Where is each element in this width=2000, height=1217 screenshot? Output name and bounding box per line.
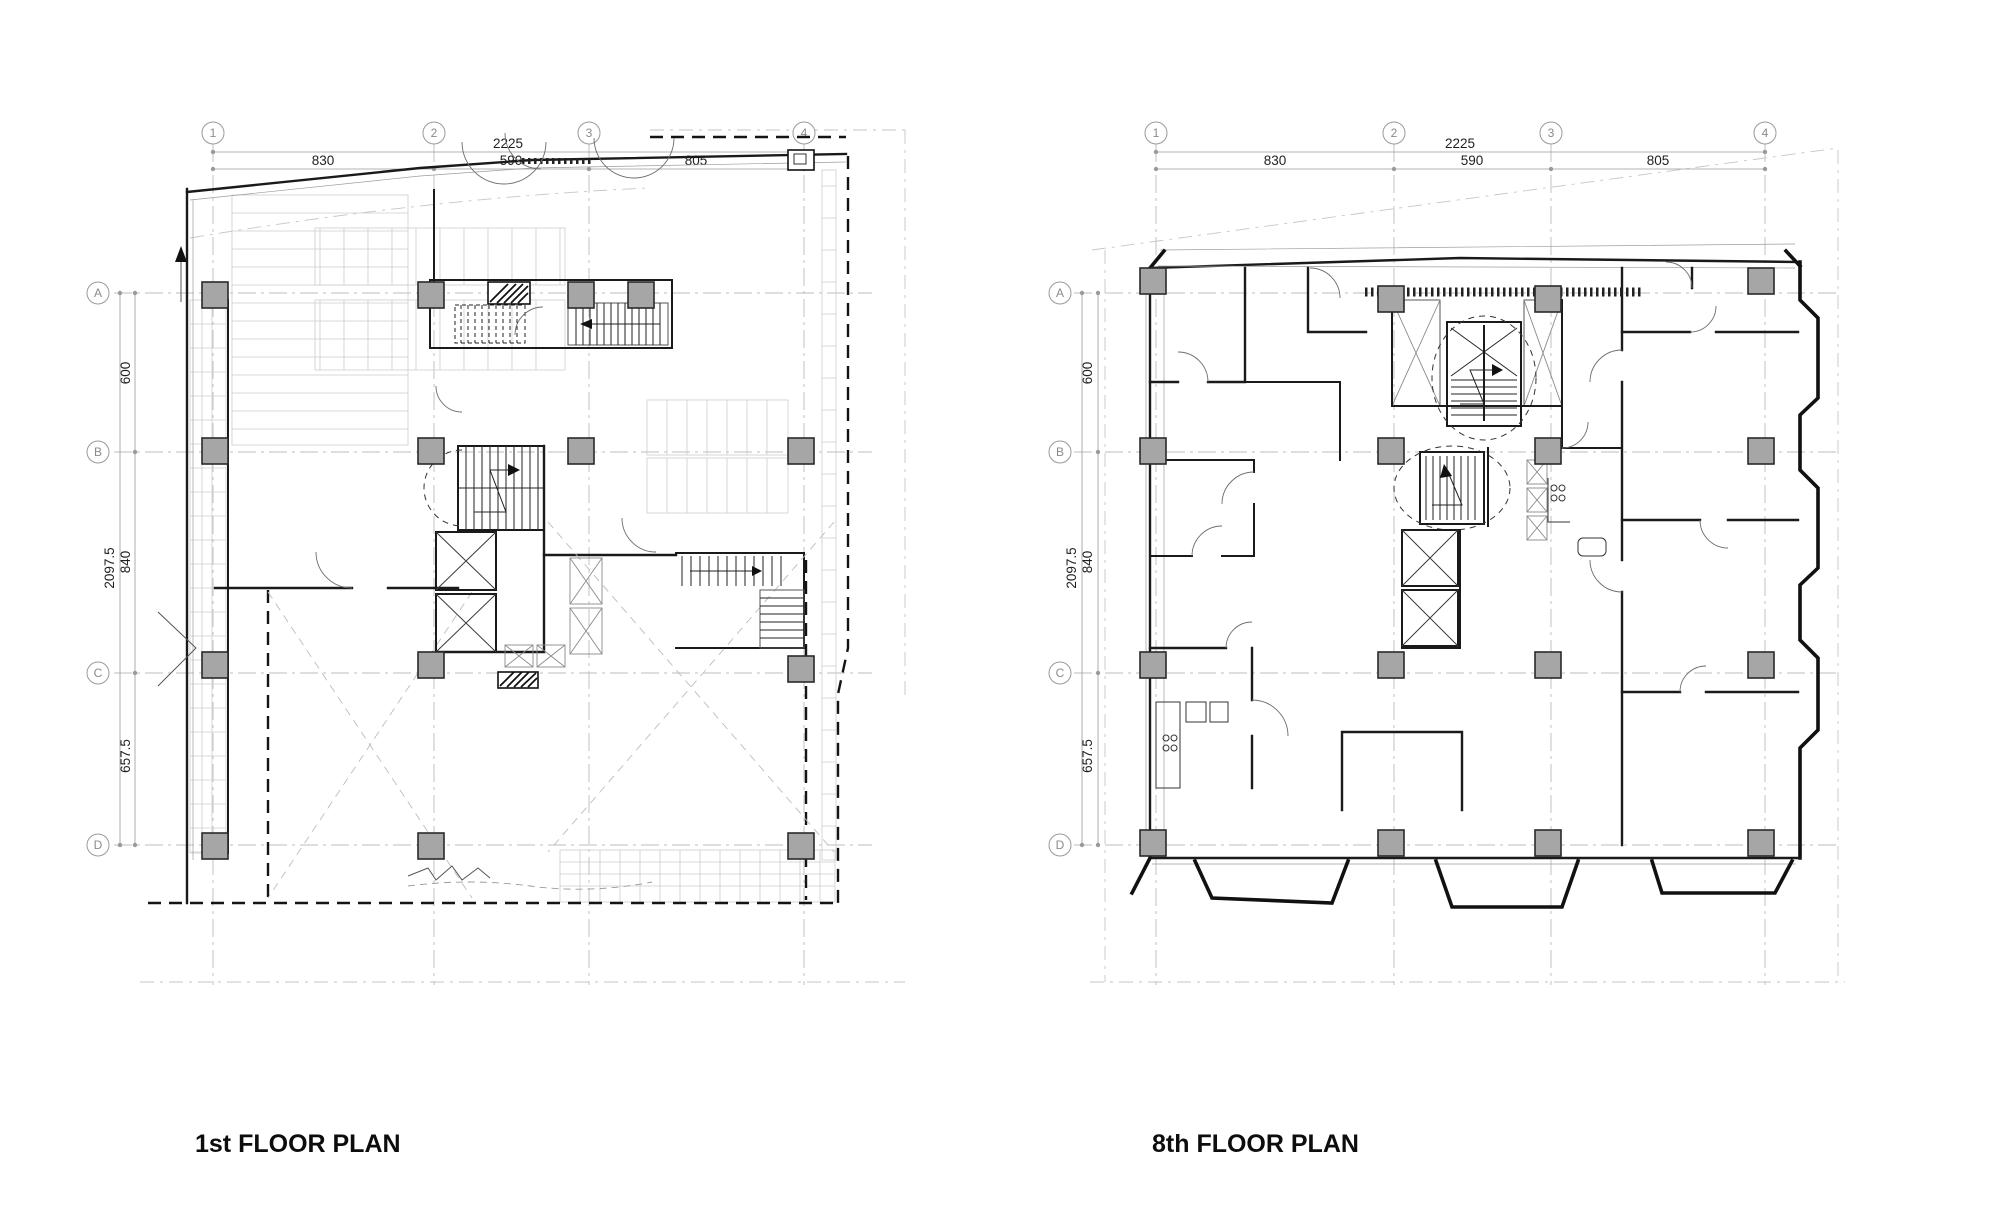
first-floor-title: 1st FLOOR PLAN	[195, 1130, 401, 1158]
building-walls	[1132, 244, 1818, 907]
dim-left-seg-3: 657.5	[1080, 739, 1095, 773]
dim-left-seg-2: 840	[1080, 551, 1095, 574]
dim-left-seg-3: 657.5	[118, 739, 133, 773]
drawing-sheet: 2225 830 590 805 2097.5 600 840 657.5 1 …	[0, 0, 2000, 1217]
door-arcs	[316, 133, 674, 588]
bubble-row-a: A	[94, 286, 102, 300]
north-arrow	[175, 246, 187, 302]
dim-left-seg-1: 600	[118, 362, 133, 385]
dimension-lines	[118, 150, 806, 847]
bubble-row-a: A	[1056, 286, 1064, 300]
bubble-row-b: B	[94, 445, 102, 459]
bubble-col-4: 4	[1762, 126, 1769, 140]
dim-left-seg-2: 840	[118, 551, 133, 574]
bubble-col-3: 3	[586, 126, 593, 140]
bubble-col-1: 1	[210, 126, 217, 140]
dim-left-overall: 2097.5	[102, 547, 117, 588]
bubble-row-b: B	[1056, 445, 1064, 459]
dim-top-seg-3: 805	[685, 153, 708, 168]
dim-left-seg-1: 600	[1080, 362, 1095, 385]
bubble-row-c: C	[94, 666, 103, 680]
dim-top-seg-1: 830	[1264, 153, 1287, 168]
floor-plans-svg: 2225 830 590 805 2097.5 600 840 657.5 1 …	[0, 0, 2000, 1217]
dim-top-seg-1: 830	[312, 153, 335, 168]
dim-left-overall: 2097.5	[1064, 547, 1079, 588]
bubble-row-d: D	[94, 838, 103, 852]
dim-top-overall: 2225	[493, 136, 523, 151]
bubble-col-2: 2	[431, 126, 438, 140]
dimension-lines	[1080, 150, 1767, 847]
bubble-col-1: 1	[1153, 126, 1160, 140]
grid-bubbles: 1 2 3 4 A B C D	[1049, 122, 1776, 856]
kitchen-fixtures	[1156, 702, 1228, 788]
eighth-floor-plan: 2225 830 590 805 2097.5 600 840 657.5 1 …	[1049, 122, 1845, 1158]
bubble-col-2: 2	[1391, 126, 1398, 140]
dim-top-seg-2: 590	[1461, 153, 1484, 168]
dim-top-overall: 2225	[1445, 136, 1475, 151]
stair-core	[1365, 292, 1642, 648]
dim-top-seg-3: 805	[1647, 153, 1670, 168]
bubble-row-c: C	[1056, 666, 1065, 680]
eighth-floor-title: 8th FLOOR PLAN	[1152, 1130, 1359, 1158]
bubble-row-d: D	[1056, 838, 1065, 852]
bubble-col-3: 3	[1548, 126, 1555, 140]
first-floor-plan: 2225 830 590 805 2097.5 600 840 657.5 1 …	[87, 122, 905, 1158]
grid-bubbles: 1 2 3 4 A B C D	[87, 122, 815, 856]
